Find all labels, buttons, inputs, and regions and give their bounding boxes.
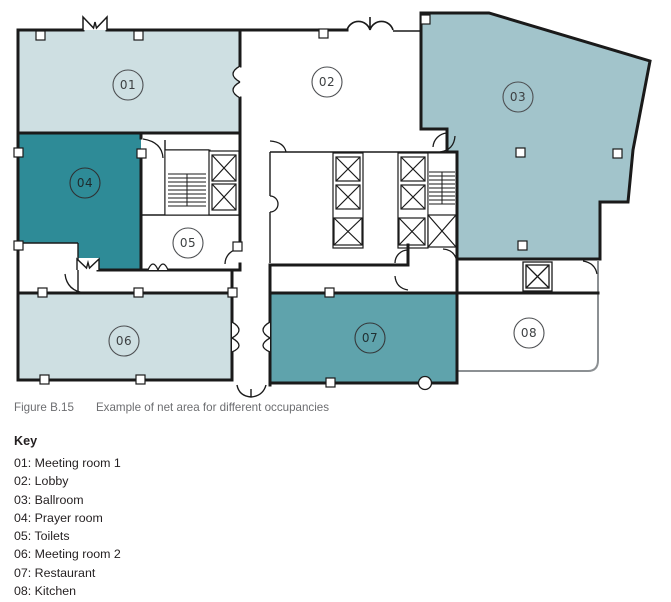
page: { "figure": { "caption_label": "Figure B… <box>0 0 671 602</box>
key-item-03: 03: Ballroom <box>14 491 121 509</box>
key-item-08: 08: Kitchen <box>14 582 121 600</box>
svg-text:06: 06 <box>116 334 132 348</box>
floor-plan: 01 02 03 04 05 06 07 08 <box>0 0 671 398</box>
stairs-left <box>165 150 210 215</box>
svg-text:08: 08 <box>521 326 537 340</box>
room-label-02: 02 <box>312 67 342 97</box>
key-item-04: 04: Prayer room <box>14 509 121 527</box>
key: Key 01: Meeting room 1 02: Lobby 03: Bal… <box>14 434 121 600</box>
figure-caption: Figure B.15Example of net area for diffe… <box>14 401 329 414</box>
key-title: Key <box>14 434 121 448</box>
room-04-area <box>18 133 141 270</box>
svg-text:05: 05 <box>180 236 196 250</box>
service-shaft <box>428 215 456 247</box>
svg-text:02: 02 <box>319 75 335 89</box>
room-label-08: 08 <box>514 318 544 348</box>
svg-text:07: 07 <box>362 331 378 345</box>
elevator-bank-left <box>209 151 239 215</box>
elevator-small <box>523 262 552 291</box>
elevator-bank-center-2 <box>398 153 428 248</box>
key-item-07: 07: Restaurant <box>14 564 121 582</box>
key-item-01: 01: Meeting room 1 <box>14 454 121 472</box>
stairs-center <box>428 153 456 215</box>
svg-text:04: 04 <box>77 176 93 190</box>
column-marker <box>419 377 432 390</box>
svg-text:01: 01 <box>120 78 136 92</box>
room-label-05: 05 <box>173 228 203 258</box>
figure-caption-label: Figure B.15 <box>14 401 74 414</box>
key-item-05: 05: Toilets <box>14 527 121 545</box>
key-item-06: 06: Meeting room 2 <box>14 545 121 563</box>
floor-plan-svg: 01 02 03 04 05 06 07 08 <box>0 0 671 398</box>
elevator-bank-center-1 <box>333 153 363 248</box>
key-item-02: 02: Lobby <box>14 472 121 490</box>
figure-caption-text: Example of net area for different occupa… <box>96 401 329 414</box>
svg-text:03: 03 <box>510 90 526 104</box>
